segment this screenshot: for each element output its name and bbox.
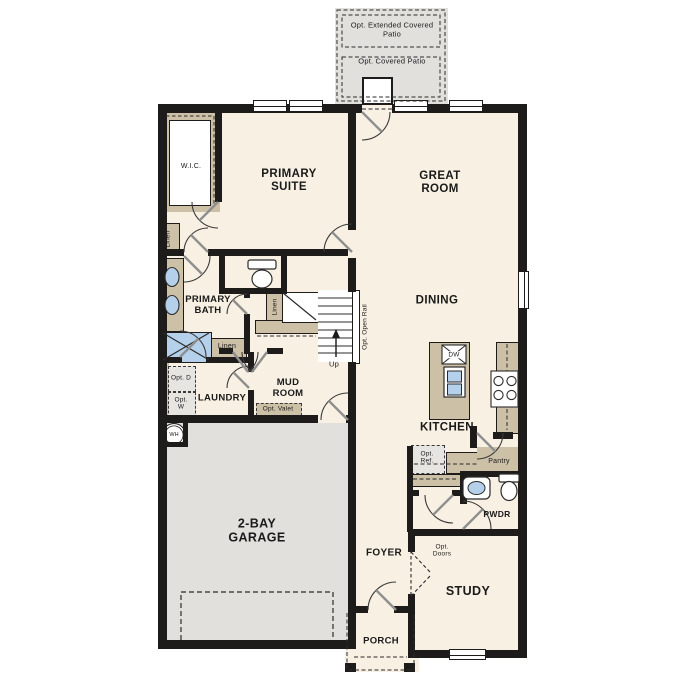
room-label-dining: DINING — [416, 294, 459, 307]
porch-post-left — [345, 663, 356, 672]
understair-closet — [282, 292, 319, 323]
window-suite-1 — [253, 100, 287, 112]
opt-dryer-label: Opt. D — [171, 374, 191, 381]
foyer-floor-fill — [352, 534, 415, 613]
kitchen-wall-counter — [496, 342, 520, 434]
room-label-pwdr: PWDR — [483, 510, 510, 520]
water-heater-label: WH — [169, 432, 178, 438]
opt-valet-label: Opt. Valet — [263, 405, 293, 412]
patio-fireplace — [362, 77, 393, 105]
closet-label-linen-hall: Linen — [218, 343, 236, 351]
room-label-primary-bath: PRIMARY BATH — [177, 295, 239, 317]
pwdr-top-wall — [460, 471, 527, 477]
room-label-foyer: FOYER — [366, 547, 402, 559]
pwdr-foyer-wall — [460, 477, 467, 504]
room-label-garage: 2-BAY GARAGE — [217, 517, 297, 546]
porch-post-right — [404, 663, 415, 672]
bath-hall-wall-a — [244, 292, 250, 298]
room-label-study: STUDY — [446, 584, 490, 598]
study-top-wall — [408, 529, 527, 536]
stair-label-open-rail: Opt. Open Rail — [361, 304, 368, 350]
landing-divider-wall — [281, 256, 287, 292]
garage-top-wall-a — [158, 415, 318, 423]
stair-label-up: Up — [329, 361, 339, 370]
floor-plan: WH — [0, 0, 687, 687]
window-study — [449, 649, 486, 660]
window-dining — [518, 271, 529, 309]
exterior-wall-right — [518, 104, 527, 658]
mud-right-wall — [348, 362, 356, 420]
suite-greatroom-wall — [348, 104, 356, 230]
study-left-wall-a — [408, 536, 415, 552]
kitchen-foyer-wall-v — [407, 446, 413, 532]
room-label-wic: W.I.C. — [181, 163, 201, 171]
window-suite-2 — [289, 100, 323, 112]
room-label-kitchen: KITCHEN — [420, 421, 474, 434]
patio-covered-label: Opt. Covered Patio — [337, 58, 447, 67]
toilet-room-left-wall — [219, 256, 225, 292]
room-label-mud-room: MUD ROOM — [265, 378, 311, 400]
kitchen-counter-strip — [411, 474, 461, 487]
closet-label-pantry: Pantry — [488, 458, 509, 466]
dishwasher-label: DW — [447, 351, 460, 358]
opt-washer-label: Opt. W — [171, 397, 191, 412]
stair-open-rail — [352, 290, 360, 364]
room-label-laundry: LAUNDRY — [198, 394, 246, 405]
kitchen-foyer-wall-ha — [407, 490, 419, 496]
bath-bottom-wall-b — [206, 357, 250, 363]
window-greatroom-2 — [449, 100, 483, 112]
stairs — [318, 290, 352, 362]
hall-mud-stub-right — [267, 348, 283, 354]
garage-right-wall — [348, 420, 356, 649]
garage-bottom-wall — [158, 640, 356, 649]
room-label-great-room: GREAT ROOM — [412, 170, 468, 196]
wh-niche-wall-h — [158, 442, 188, 447]
hall-top-wall-a — [158, 249, 184, 256]
exterior-wall-left — [158, 104, 167, 649]
bath-bottom-wall-a — [158, 357, 182, 363]
opt-ref-label: Opt. Ref. — [415, 451, 439, 466]
window-greatroom-1 — [394, 100, 428, 112]
bath-hall-wall-b — [244, 314, 250, 354]
hall-top-wall-b — [208, 249, 348, 256]
closet-label-linen-left: Linen — [164, 231, 171, 248]
counter-end-wall — [493, 432, 513, 439]
stair-top-wall — [348, 258, 356, 292]
opt-doors-label: Opt. Doors — [426, 544, 458, 559]
room-label-primary-suite: PRIMARY SUITE — [254, 168, 324, 194]
patio-extended-label: Opt. Extended Covered Patio — [346, 21, 438, 38]
study-left-wall-b — [408, 594, 415, 650]
closet-label-linen-stairs: Linen — [271, 299, 278, 316]
laundry-mud-wall-b — [248, 390, 254, 418]
room-label-porch: PORCH — [363, 637, 399, 648]
laundry-mud-wall-a — [248, 352, 254, 372]
wic-right-wall — [215, 104, 222, 202]
